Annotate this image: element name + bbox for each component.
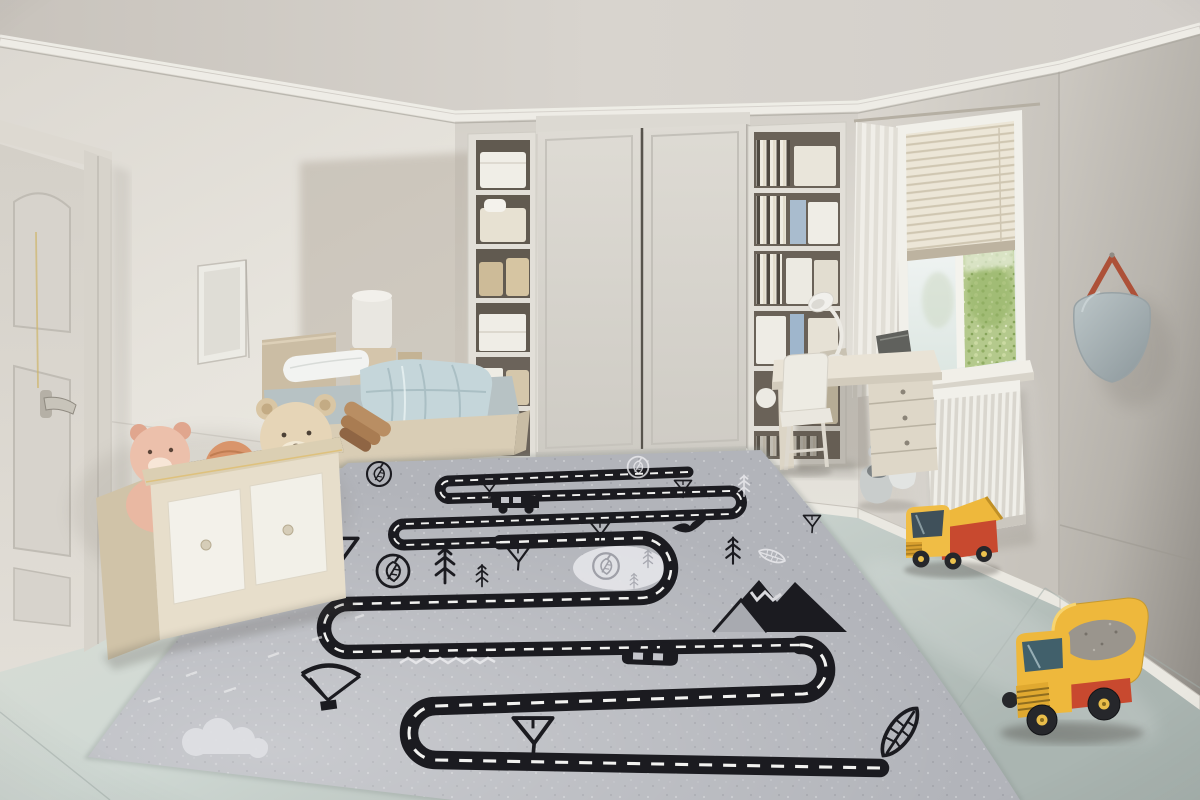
door-bottom-panel — [14, 568, 70, 626]
hub — [981, 551, 987, 557]
scene-canvas — [0, 0, 1200, 800]
door-arch-panel — [14, 193, 70, 332]
cab-window — [911, 510, 944, 538]
dump-truck-shadow — [1000, 722, 1144, 744]
wardrobe-doors — [536, 112, 753, 463]
drawer-knob — [901, 390, 906, 395]
wardrobe-right-door — [644, 124, 746, 452]
ear-inner — [320, 400, 331, 411]
bear-eye — [282, 433, 287, 438]
bear-eye — [307, 431, 312, 436]
laundry-hamper — [352, 295, 392, 349]
far-wheel — [1002, 692, 1018, 708]
clearing-circle — [573, 546, 667, 590]
hub-dot — [1040, 718, 1044, 722]
bear-eye — [169, 448, 173, 452]
bedroom-photo — [0, 0, 1200, 800]
hub — [950, 558, 956, 564]
faint-foliage — [922, 272, 954, 328]
hub-dot — [1102, 702, 1106, 706]
drawer-knob — [905, 441, 910, 446]
drawer-knob — [283, 525, 293, 535]
cab-window — [1022, 638, 1063, 672]
wardrobe-left-door — [538, 128, 640, 456]
drawer-knob — [903, 416, 908, 421]
mirror-hook — [1109, 252, 1114, 257]
bear-eye — [148, 450, 152, 454]
small-toy-truck — [904, 497, 1002, 578]
wall-picture-frame — [198, 260, 249, 364]
chair-back — [782, 353, 828, 412]
drawer-knob — [201, 540, 211, 550]
chair-shadow — [780, 467, 832, 477]
tree-blob — [968, 263, 1012, 327]
hub — [918, 556, 924, 562]
hamper-top — [352, 290, 392, 302]
